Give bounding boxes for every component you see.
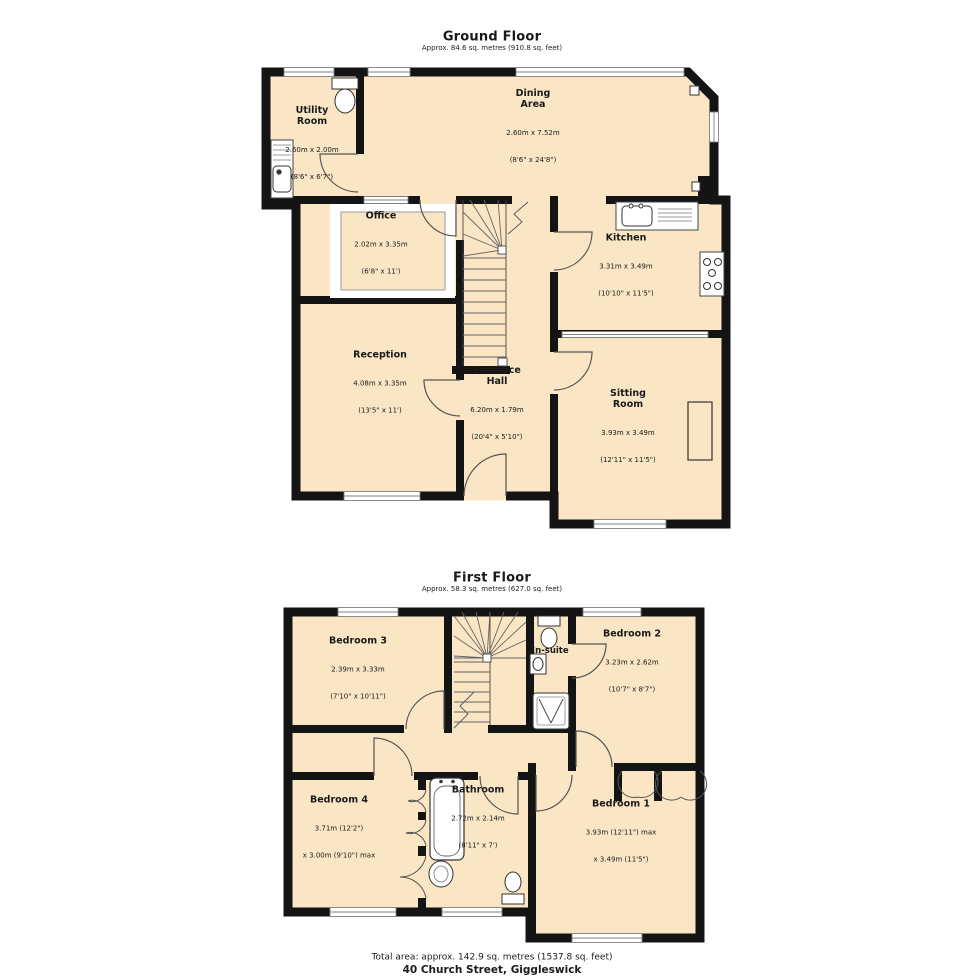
floorplan-page: Ground Floor Approx. 84.6 sq. metres (91… <box>0 0 980 980</box>
room-label-kitchen: Kitchen 3.31m x 3.49m (10'10" x 11'5") <box>598 213 654 316</box>
room-name: Bathroom <box>451 784 504 795</box>
first-floor-title: First Floor <box>453 570 531 585</box>
room-dims: (13'5" x 11') <box>353 406 407 414</box>
room-dims: 2.72m x 2.14m <box>451 814 504 822</box>
room-dims: (6'8" x 11') <box>354 267 407 275</box>
room-name: Reception <box>353 349 407 360</box>
room-label-bedroom-1: Bedroom 1 3.93m (12'11") max x 3.49m (11… <box>586 779 657 882</box>
room-name: Bedroom 3 <box>329 635 387 646</box>
room-dims: 3.93m (12'11") max <box>586 828 657 836</box>
window <box>330 908 396 917</box>
shower-icon <box>533 693 569 729</box>
room-dims: 3.93m x 3.49m <box>600 429 656 437</box>
room-name: Dining Area <box>506 88 559 110</box>
window <box>368 68 410 77</box>
ground-floor-approx: Approx. 84.6 sq. metres (910.8 sq. feet) <box>422 44 562 52</box>
room-dims: x 3.00m (9'10") max <box>303 851 375 859</box>
total-area-text: Total area: approx. 142.9 sq. metres (15… <box>371 953 612 964</box>
room-dims: 2.39m x 3.33m <box>329 665 387 673</box>
room-dims: 3.31m x 3.49m <box>598 262 654 270</box>
property-address: 40 Church Street, Giggleswick <box>403 964 582 976</box>
room-name: Kitchen <box>598 232 654 243</box>
room-dims: x 3.49m (11'5") <box>586 855 657 863</box>
room-label-bedroom-3: Bedroom 3 2.39m x 3.33m (7'10" x 10'11") <box>329 616 387 719</box>
room-dims: 2.60m x 7.52m <box>506 129 559 137</box>
room-dims: (8'6" x 6'7") <box>285 173 338 181</box>
room-dims: 2.60m x 2.00m <box>285 146 338 154</box>
room-dims: (8'6" x 24'8") <box>506 156 559 164</box>
room-name: Utility Room <box>285 105 338 127</box>
window <box>572 934 642 943</box>
window <box>344 492 420 501</box>
window <box>710 112 719 142</box>
fireplace <box>688 402 712 460</box>
room-label-bedroom-2: Bedroom 2 3.23m x 2.62m (10'7" x 8'7") <box>603 609 661 712</box>
room-dims: (10'10" x 11'5") <box>598 289 654 297</box>
room-dims: 2.02m x 3.35m <box>354 240 407 248</box>
chimney-box <box>690 86 699 95</box>
ground-floor-title: Ground Floor <box>443 29 541 44</box>
glazed-divider <box>562 332 708 338</box>
room-dims: 6.20m x 1.79m <box>470 406 523 414</box>
window <box>284 68 334 77</box>
room-name: Bedroom 4 <box>303 794 375 805</box>
room-name: Entrance Hall <box>470 365 523 387</box>
room-dims: (10'7" x 8'7") <box>603 685 661 693</box>
room-label-office: Office 2.02m x 3.35m (6'8" x 11') <box>354 191 407 294</box>
basin-icon <box>429 861 453 887</box>
room-label-dining-area: Dining Area 2.60m x 7.52m (8'6" x 24'8") <box>506 69 559 183</box>
window <box>338 608 398 617</box>
room-label-sitting-room: Sitting Room 3.93m x 3.49m (12'11" x 11'… <box>600 369 656 483</box>
room-name: Office <box>354 210 407 221</box>
room-label-utility-room: Utility Room 2.60m x 2.00m (8'6" x 6'7") <box>285 86 338 200</box>
room-dims: 4.08m x 3.35m <box>353 379 407 387</box>
stove-icon <box>700 252 724 296</box>
window <box>594 520 666 529</box>
room-dims: (20'4" x 5'10") <box>470 433 523 441</box>
room-label-reception: Reception 4.08m x 3.35m (13'5" x 11') <box>353 330 407 433</box>
room-name: Bedroom 2 <box>603 628 661 639</box>
first-floor-approx: Approx. 58.3 sq. metres (627.0 sq. feet) <box>422 585 562 593</box>
window <box>442 908 502 917</box>
room-label-bedroom-4: Bedroom 4 3.71m (12'2") x 3.00m (9'10") … <box>303 775 375 878</box>
room-dims: (8'11" x 7') <box>451 841 504 849</box>
boiler-box <box>692 182 700 191</box>
room-dims: 3.23m x 2.62m <box>603 658 661 666</box>
room-label-en-suite: En-suite <box>529 627 568 675</box>
room-label-entrance-hall: Entrance Hall 6.20m x 1.79m (20'4" x 5'1… <box>470 346 523 460</box>
room-name: Sitting Room <box>600 388 656 410</box>
room-dims: 3.71m (12'2") <box>303 824 375 832</box>
room-name: En-suite <box>529 646 568 656</box>
room-label-bathroom: Bathroom 2.72m x 2.14m (8'11" x 7') <box>451 765 504 868</box>
room-dims: (12'11" x 11'5") <box>600 456 656 464</box>
room-name: Bedroom 1 <box>586 798 657 809</box>
room-dims: (7'10" x 10'11") <box>329 692 387 700</box>
